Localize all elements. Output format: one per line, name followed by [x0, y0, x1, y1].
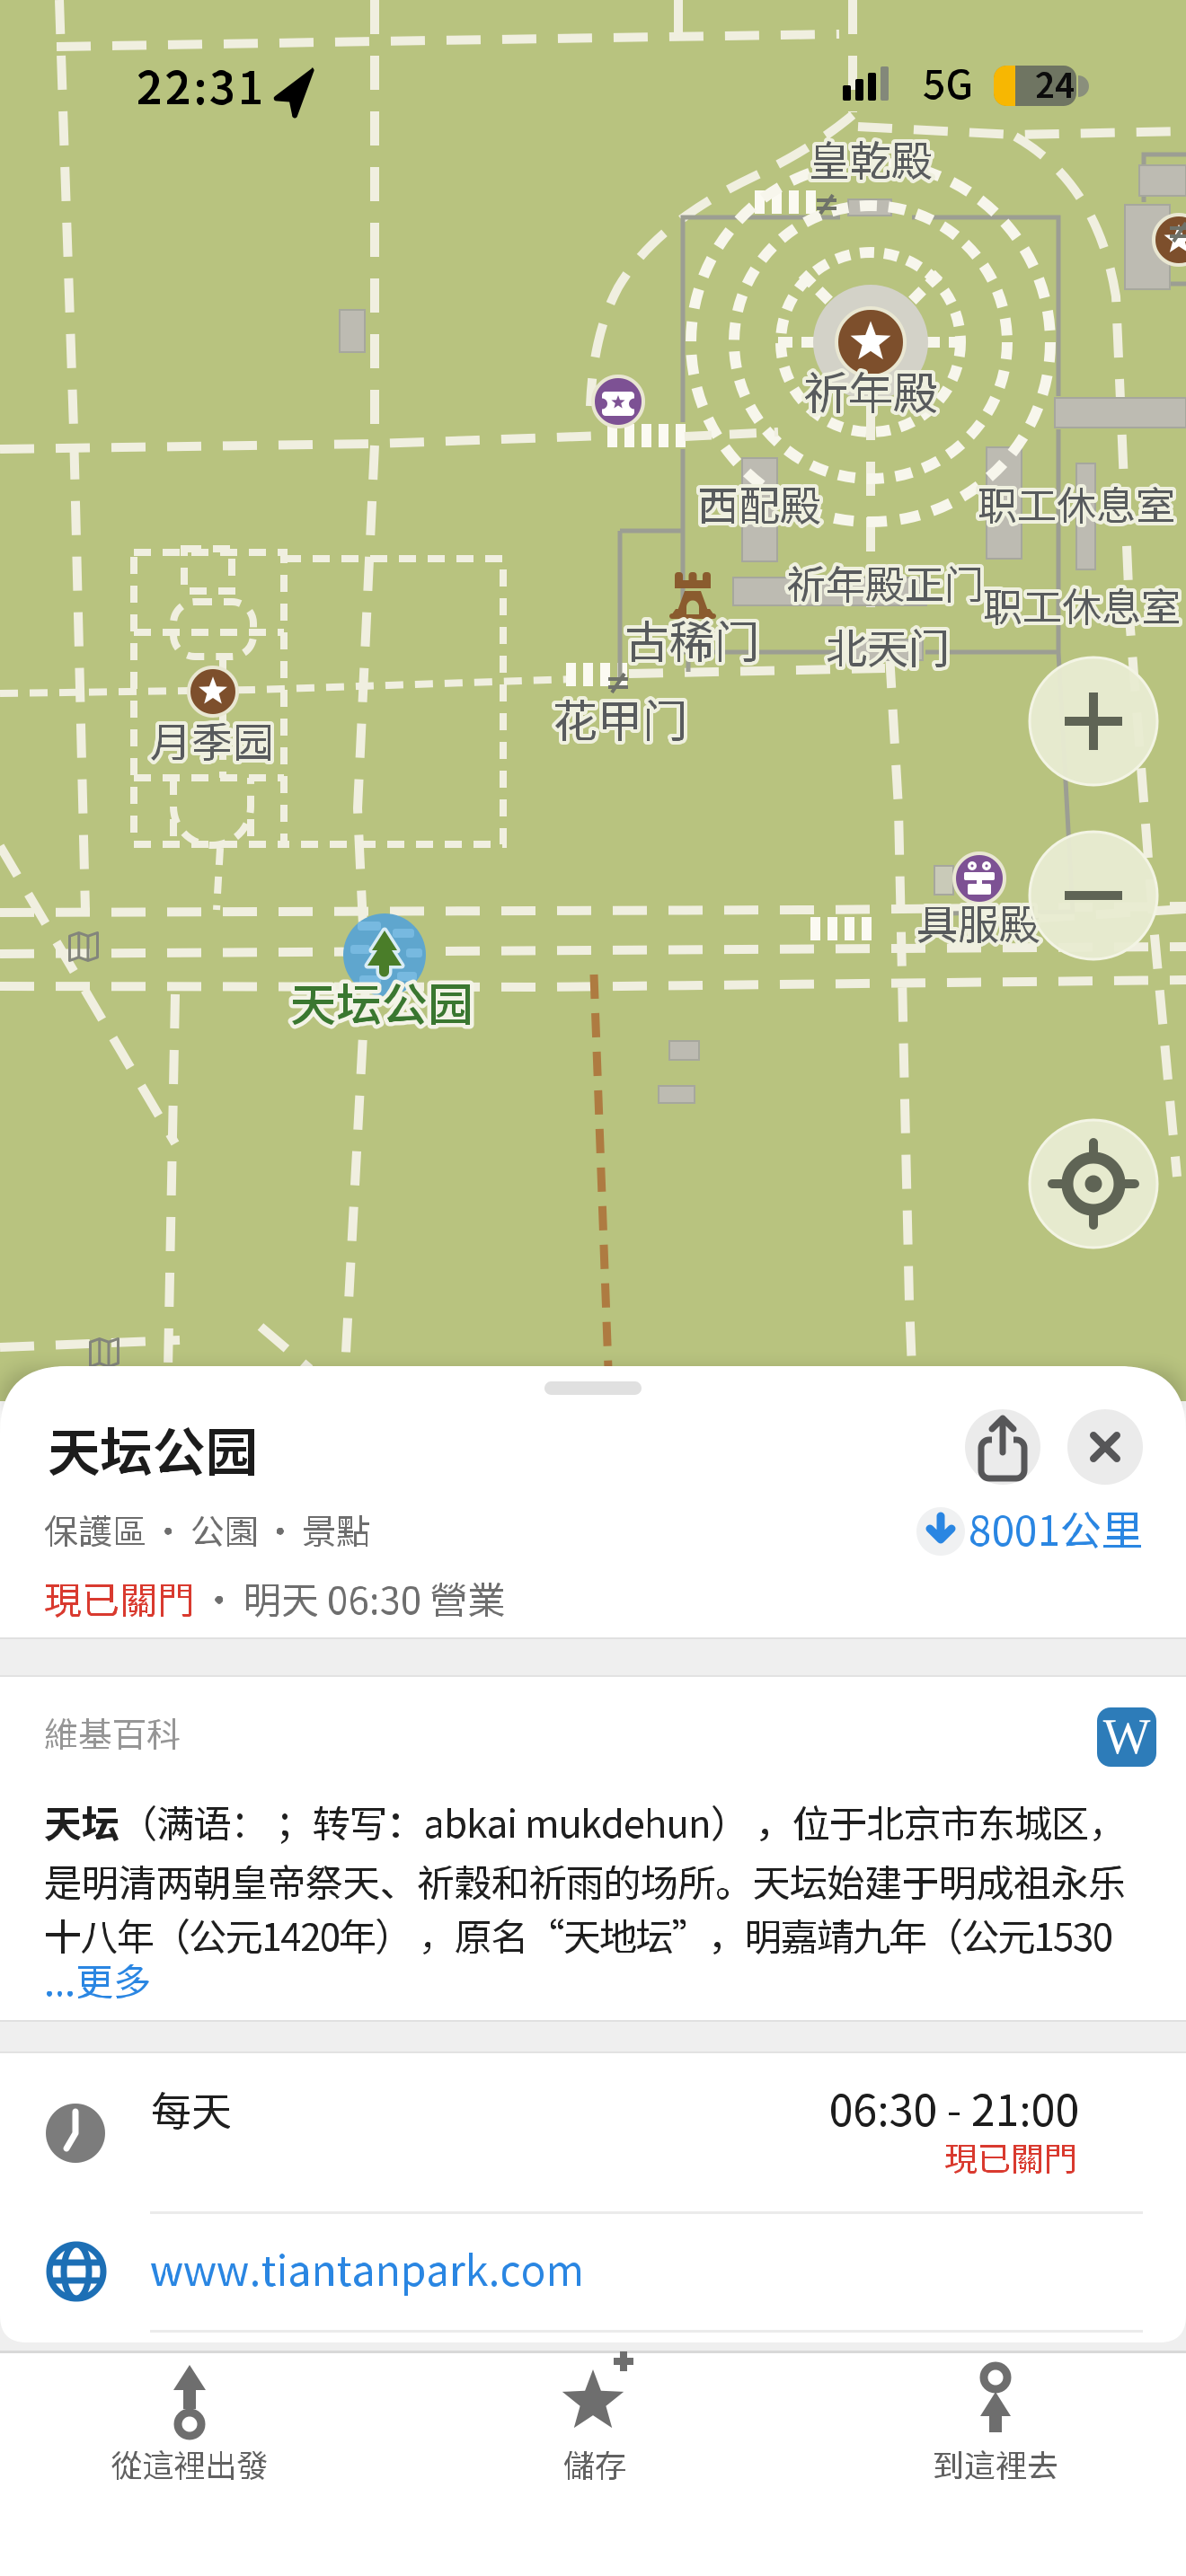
svg-text:W: W	[1103, 1709, 1151, 1765]
